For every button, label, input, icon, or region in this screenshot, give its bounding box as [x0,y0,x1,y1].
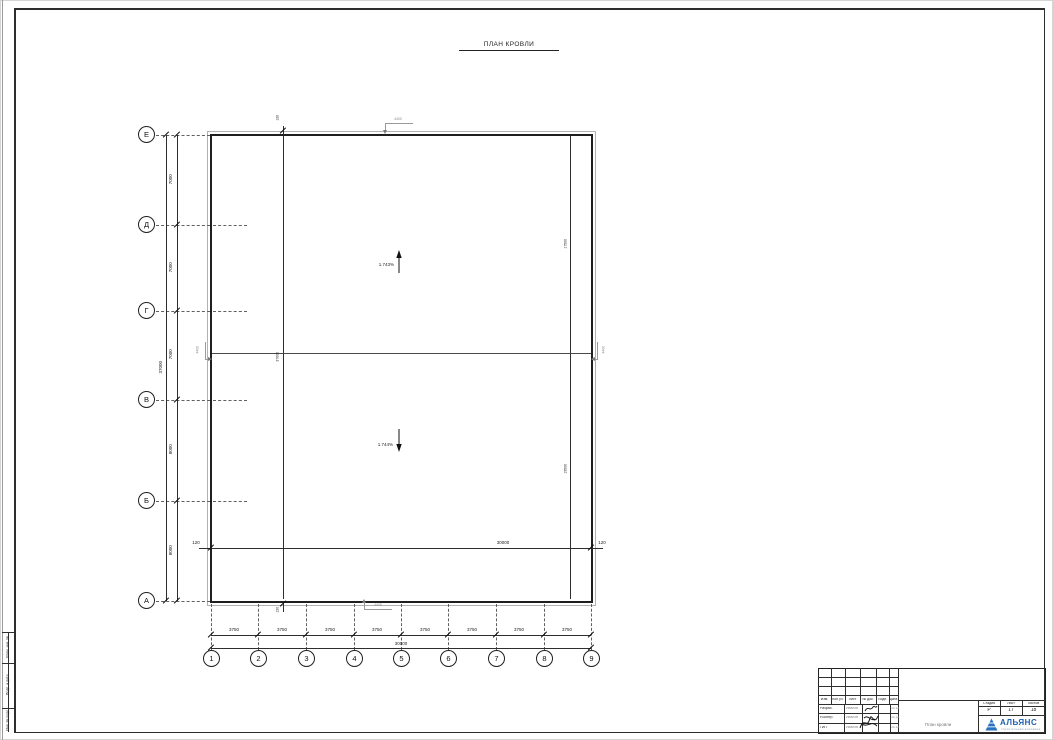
dim-left-bay: 7000 [169,255,174,279]
dim-bottom-bay: 3750 [224,628,244,633]
tb-date: 03.13 [891,707,899,711]
dim-left-bay: 8000 [169,538,174,562]
axis-circle-col: 1 [203,650,220,667]
axis-dash-inside [213,501,247,502]
side-stamp-label: Подп. и дата [6,663,10,707]
mark-right-value: 4400 [602,341,606,359]
axis-circle-row: Г [138,302,155,319]
tb-stage-value: 17 [1000,708,1022,713]
axis-label: 4 [352,654,356,663]
dim-line-left-bays [177,135,178,601]
axis-circle-col: 7 [488,650,505,667]
tb-role: ГИП [820,726,843,730]
tb-role: Разраб. [820,707,843,711]
axis-circle-row: В [138,391,155,408]
roof-line-vertical-left [283,136,284,599]
axis-label: 9 [589,654,593,663]
tb-stage-value: 18 [1022,708,1045,713]
drawing-sheet: Взам. инв. № Подп. и дата Инв. № подл. П… [0,0,1053,740]
frame-top [14,8,1045,10]
inner-dim-line [199,548,603,549]
axis-label: 3 [304,654,308,663]
axis-label: Б [144,496,149,505]
dim-line-bottom-total [211,648,591,649]
dim-left-bay: 7000 [169,342,174,366]
tb-date: 03.13 [891,726,899,730]
axis-circle-row: Д [138,216,155,233]
axis-label: 5 [399,654,403,663]
inner-dim-right: 120 [594,541,610,546]
axis-dash-inside [213,400,247,401]
dim-left-total: 37000 [159,353,164,381]
slope-upper-label: 1.743% [368,263,394,268]
dim-bottom-bay: 3750 [557,628,577,633]
mark-right-drop [597,342,598,360]
axis-ext-line [591,604,592,650]
dim-left-bay: 8000 [169,437,174,461]
roof-outline [210,134,593,603]
tb-stage-header: Стадия [978,702,1000,706]
mark-bottom-drop [364,603,365,609]
tb-doc-name: План кровли [900,723,976,728]
tb-line [978,715,1045,716]
axis-label: А [144,596,149,605]
offset-top-label: 120 [276,112,280,124]
side-stamp-label: Инв. № подл. [6,707,10,733]
tb-header-cell: Кол.уч. [831,698,845,702]
axis-label: Д [144,220,149,229]
dim-left-bay: 7000 [169,167,174,191]
mark-top-arrow-icon [383,130,387,134]
mark-right-arrow-icon [591,357,595,361]
axis-circle-col: 4 [346,650,363,667]
axis-ext-line [306,604,307,650]
signature-icon [858,712,880,732]
mark-left-arrow-icon [208,357,212,361]
mark-top-value: 4400 [386,118,410,122]
axis-label: 8 [542,654,546,663]
axis-circle-row: Е [138,126,155,143]
slope-arrow-down-icon [394,429,404,452]
right-lower-dim: 19500 [564,458,568,480]
slope-arrow-up-icon [394,250,404,273]
side-stamp-label: Взам. инв. № [6,632,10,662]
axis-ext-line [544,604,545,650]
tb-line [818,704,898,705]
axis-label: 6 [446,654,450,663]
tb-role: Н.контр. [820,716,843,720]
roof-ridge-line [212,353,591,355]
tb-header-cell: Дата [889,698,898,702]
axis-label: Е [144,130,149,139]
axis-circle-col: 6 [440,650,457,667]
tb-date: 03.13 [891,716,899,720]
col-line-total: 37000 [276,345,280,369]
axis-label: 2 [256,654,260,663]
mark-bottom-value: 4400 [366,604,390,608]
mark-left-value: 4400 [196,341,200,359]
frame-left [14,8,16,733]
logo-subtitle: строительная компания [1001,728,1045,731]
slope-lower-label: 1.744% [367,443,393,448]
dim-bottom-bay: 3750 [509,628,529,633]
dim-bottom-bay: 3750 [367,628,387,633]
mark-top-drop [385,123,386,130]
tb-header-cell: № док. [860,698,876,702]
axis-circle-col: 5 [393,650,410,667]
tb-stage-value: Р [978,708,1000,713]
axis-ext-line [156,311,210,312]
right-upper-dim: 17500 [564,233,568,255]
axis-label: 1 [209,654,213,663]
axis-dash-inside [213,311,247,312]
tb-stage-header: Листов [1022,702,1045,706]
frame-right [1044,8,1046,733]
mark-bottom-arrow-icon [362,599,366,603]
axis-ext-line [156,225,210,226]
tb-header-cell: Изм. [818,698,831,702]
axis-circle-row: А [138,592,155,609]
alyans-logo-icon [985,718,998,731]
tb-line [844,704,845,733]
dim-bottom-bay: 3750 [320,628,340,633]
tb-header-cell: Подп. [876,698,889,702]
drawing-title: ПЛАН КРОВЛИ [459,42,559,51]
axis-ext-line [156,501,210,502]
axis-ext-line [354,604,355,650]
tb-line [818,695,898,696]
dim-bottom-total: 30000 [386,642,416,647]
tb-stage-header: Лист [1000,702,1022,706]
axis-circle-col: 2 [250,650,267,667]
dim-bottom-bay: 3750 [272,628,292,633]
mark-top-shelf [385,123,413,124]
axis-label: Г [144,306,148,315]
tb-line [978,706,1045,707]
roof-line-vertical-right [570,136,571,599]
axis-ext-line [211,604,212,650]
axis-circle-col: 8 [536,650,553,667]
tb-line [818,677,898,678]
axis-ext-line [156,400,210,401]
axis-dash-inside [213,225,247,226]
offset-bottom-label: 120 [276,604,280,616]
axis-circle-col: 9 [583,650,600,667]
inner-dim-left: 120 [188,541,204,546]
tb-name: Иванов [846,707,861,711]
tb-line [818,686,898,687]
dim-bottom-bay: 3750 [415,628,435,633]
dim-bottom-bay: 3750 [462,628,482,633]
axis-label: В [144,395,149,404]
mark-left-drop [205,342,206,360]
axis-label: 7 [494,654,498,663]
inner-dim-total: 30000 [488,541,518,546]
axis-ext-line [496,604,497,650]
sheet-left-trim-line [2,0,3,740]
axis-circle-row: Б [138,492,155,509]
mark-bottom-shelf [364,609,392,610]
logo-name: АЛЬЯНС [1000,719,1044,727]
tb-header-cell: Лист [845,698,860,702]
axis-ext-line [258,604,259,650]
dim-line-left-total [166,135,167,601]
axis-circle-col: 3 [298,650,315,667]
axis-ext-line [448,604,449,650]
